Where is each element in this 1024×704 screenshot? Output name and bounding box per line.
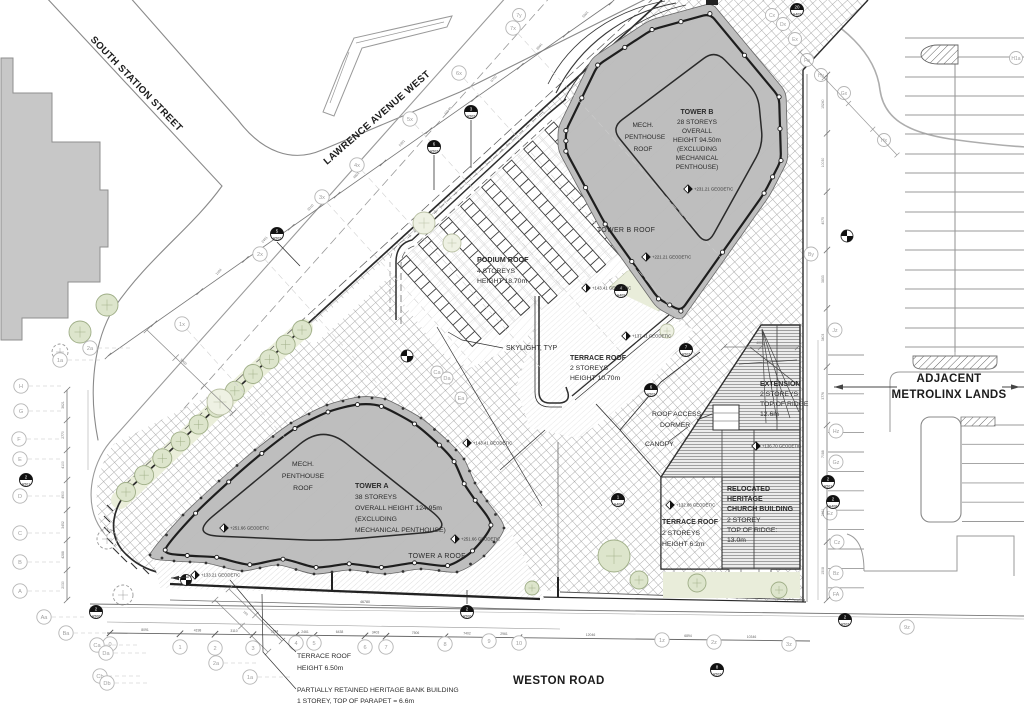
svg-text:TOWER B: TOWER B: [681, 109, 714, 116]
svg-text:Cx: Cx: [769, 13, 776, 19]
svg-text:4075: 4075: [821, 217, 825, 225]
svg-text:PENTHOUSE: PENTHOUSE: [625, 134, 666, 141]
svg-text:4005: 4005: [756, 341, 764, 345]
svg-text:7088: 7088: [821, 450, 825, 458]
svg-text:HEIGHT 6.50m: HEIGHT 6.50m: [297, 665, 344, 672]
svg-text:ROOF ACCESS: ROOF ACCESS: [652, 411, 702, 418]
svg-text:G: G: [19, 409, 23, 415]
svg-text:1: 1: [178, 645, 181, 651]
svg-text:A502: A502: [841, 623, 849, 627]
svg-text:1 STOREY, TOP OF PARAPET = 6.6: 1 STOREY, TOP OF PARAPET = 6.6m: [297, 698, 415, 704]
svg-text:5: 5: [312, 641, 315, 647]
svg-text:3403: 3403: [821, 334, 825, 342]
svg-text:MECHANICAL PENTHOUSE): MECHANICAL PENTHOUSE): [355, 527, 446, 534]
svg-text:Fa: Fa: [804, 58, 810, 64]
svg-text:F: F: [17, 437, 21, 443]
svg-text:2a: 2a: [87, 346, 94, 352]
svg-text:B: B: [18, 560, 22, 566]
svg-text:Cz: Cz: [834, 540, 841, 546]
svg-text:A502: A502: [713, 673, 721, 677]
svg-text:A500: A500: [92, 615, 100, 619]
svg-text:Db: Db: [103, 681, 110, 687]
svg-text:+143.41 GEODETIC: +143.41 GEODETIC: [592, 286, 631, 291]
svg-text:+136.70 GEODETIC: +136.70 GEODETIC: [762, 444, 801, 449]
svg-text:+221.21 GEODETIC: +221.21 GEODETIC: [652, 255, 691, 260]
svg-text:7y: 7y: [516, 13, 522, 19]
svg-text:A502: A502: [430, 150, 438, 154]
svg-text:5x: 5x: [407, 117, 413, 123]
svg-text:H1a: H1a: [1011, 56, 1020, 62]
svg-text:A501: A501: [824, 485, 832, 489]
svg-text:Da: Da: [102, 651, 110, 657]
svg-text:A500: A500: [463, 615, 471, 619]
svg-text:2a: 2a: [213, 661, 220, 667]
svg-text:Jz: Jz: [832, 328, 838, 334]
svg-text:7506: 7506: [412, 631, 420, 635]
svg-text:TOWER A: TOWER A: [355, 481, 389, 490]
svg-text:2030: 2030: [61, 581, 65, 589]
svg-text:By: By: [808, 252, 814, 258]
svg-text:4: 4: [294, 641, 297, 647]
svg-text:1a: 1a: [247, 675, 254, 681]
svg-text:OVERALL: OVERALL: [682, 128, 712, 135]
svg-text:MECH.: MECH.: [292, 461, 314, 468]
svg-text:PARTIALLY RETAINED HERITAGE BA: PARTIALLY RETAINED HERITAGE BANK BUILDIN…: [297, 687, 459, 694]
svg-text:DORMER: DORMER: [660, 422, 690, 429]
svg-text:A502: A502: [467, 115, 475, 119]
svg-text:3z: 3z: [786, 642, 792, 648]
svg-text:A501: A501: [22, 483, 30, 487]
svg-text:PODIUM ROOF: PODIUM ROOF: [477, 255, 529, 264]
svg-text:3x: 3x: [319, 195, 325, 201]
svg-text:(EXCLUDING: (EXCLUDING: [677, 146, 717, 153]
svg-text:2 STOREYS: 2 STOREYS: [760, 391, 798, 398]
svg-text:4100: 4100: [61, 461, 65, 469]
svg-text:6: 6: [363, 645, 366, 651]
svg-text:TOWER B ROOF: TOWER B ROOF: [597, 227, 655, 234]
svg-text:4198: 4198: [194, 629, 202, 633]
svg-text:3621: 3621: [61, 401, 65, 409]
svg-text:3110: 3110: [230, 629, 237, 633]
svg-text:Ea: Ea: [458, 396, 466, 402]
svg-text:HEIGHT 94.50m: HEIGHT 94.50m: [673, 137, 721, 144]
svg-text:METROLINX LANDS: METROLINX LANDS: [891, 389, 1006, 401]
svg-text:Ca: Ca: [433, 370, 441, 376]
svg-text:PENTHOUSE: PENTHOUSE: [282, 473, 325, 480]
svg-text:TOP OF RIDGE: TOP OF RIDGE: [760, 401, 809, 408]
svg-text:H: H: [19, 384, 23, 390]
svg-text:Ex: Ex: [792, 37, 798, 43]
svg-text:ADJACENT: ADJACENT: [916, 373, 981, 385]
svg-text:2x: 2x: [257, 252, 263, 258]
svg-text:Hz: Hz: [833, 429, 840, 435]
svg-text:13.0m: 13.0m: [727, 537, 746, 544]
svg-text:Dx: Dx: [780, 22, 787, 28]
svg-text:10346: 10346: [747, 635, 757, 639]
svg-text:2 STOREY: 2 STOREY: [727, 517, 761, 524]
svg-text:(EXCLUDING: (EXCLUDING: [355, 516, 397, 523]
svg-text:2z: 2z: [711, 640, 717, 646]
svg-text:EXTENSION: EXTENSION: [760, 381, 800, 388]
svg-text:28 STOREYS: 28 STOREYS: [677, 119, 718, 126]
svg-text:A: A: [18, 589, 22, 595]
svg-text:2961: 2961: [500, 632, 508, 636]
svg-text:A502: A502: [682, 353, 690, 357]
svg-text:8: 8: [443, 642, 446, 648]
svg-text:2 STOREYS: 2 STOREYS: [662, 530, 700, 537]
svg-text:A408: A408: [829, 505, 837, 509]
svg-text:12.6m: 12.6m: [760, 411, 779, 418]
svg-text:TOP OF RIDGE:: TOP OF RIDGE:: [727, 527, 777, 534]
svg-text:WESTON ROAD: WESTON ROAD: [513, 675, 605, 687]
svg-text:Bz: Bz: [833, 571, 839, 577]
svg-text:A502: A502: [273, 237, 281, 241]
svg-text:6438: 6438: [336, 630, 344, 634]
svg-text:MECHANICAL: MECHANICAL: [676, 155, 719, 162]
svg-text:1z: 1z: [659, 638, 665, 644]
svg-text:20: 20: [794, 5, 800, 10]
svg-text:+133.21 GEODETIC: +133.21 GEODETIC: [201, 573, 240, 578]
svg-text:FA: FA: [833, 592, 840, 598]
svg-text:4 STOREYS: 4 STOREYS: [477, 268, 515, 275]
svg-text:TERRACE ROOF: TERRACE ROOF: [570, 355, 627, 362]
svg-text:MECH.: MECH.: [633, 122, 654, 129]
svg-text:+132.88 GEODETIC: +132.88 GEODETIC: [676, 503, 715, 508]
svg-text:7: 7: [384, 645, 387, 651]
svg-text:8091: 8091: [141, 628, 149, 632]
svg-text:2461: 2461: [821, 509, 825, 517]
svg-text:HERITAGE: HERITAGE: [727, 496, 763, 503]
svg-text:7x: 7x: [510, 26, 516, 32]
svg-text:2461: 2461: [301, 630, 309, 634]
svg-text:+251.66 GEODETIC: +251.66 GEODETIC: [461, 537, 500, 542]
svg-text:E: E: [18, 457, 22, 463]
svg-text:1x: 1x: [179, 322, 185, 328]
svg-text:Gz: Gz: [833, 460, 840, 466]
svg-text:+231.21 GEODETIC: +231.21 GEODETIC: [694, 187, 733, 192]
svg-text:3833: 3833: [821, 275, 825, 283]
svg-text:D: D: [18, 494, 22, 500]
svg-text:9z: 9z: [904, 625, 910, 631]
svg-text:10: 10: [516, 641, 522, 647]
svg-text:Ba: Ba: [63, 631, 71, 637]
svg-text:ROOF: ROOF: [293, 485, 313, 492]
svg-text:Aa: Aa: [41, 615, 49, 621]
svg-text:PENTHOUSE): PENTHOUSE): [676, 164, 719, 171]
svg-text:A409: A409: [793, 13, 801, 17]
svg-text:3403: 3403: [372, 631, 380, 635]
svg-text:Da: Da: [443, 376, 451, 382]
svg-text:10030: 10030: [821, 158, 825, 168]
svg-text:3776: 3776: [821, 392, 825, 400]
svg-text:A502: A502: [647, 393, 655, 397]
svg-text:A408: A408: [614, 503, 622, 507]
svg-text:TERRACE ROOF: TERRACE ROOF: [297, 653, 351, 660]
svg-text:TOWER A ROOF: TOWER A ROOF: [408, 553, 466, 560]
svg-text:6x: 6x: [456, 71, 462, 77]
svg-text:ROOF: ROOF: [634, 146, 653, 153]
svg-text:2: 2: [213, 646, 216, 652]
svg-text:2 STOREYS: 2 STOREYS: [570, 365, 608, 372]
svg-text:A409: A409: [617, 294, 625, 298]
svg-text:+251.66 GEODETIC: +251.66 GEODETIC: [230, 526, 269, 531]
svg-text:4x: 4x: [354, 163, 360, 169]
svg-text:3452: 3452: [61, 521, 65, 529]
svg-text:7402: 7402: [463, 632, 471, 636]
svg-text:12046: 12046: [586, 633, 596, 637]
svg-text:CHURCH BUILDING: CHURCH BUILDING: [727, 506, 794, 513]
svg-text:1508: 1508: [821, 567, 825, 575]
svg-text:RELOCATED: RELOCATED: [727, 486, 770, 493]
svg-text:1a: 1a: [57, 358, 64, 364]
svg-text:Ez: Ez: [827, 511, 833, 517]
svg-text:C: C: [18, 531, 22, 537]
svg-text:9: 9: [487, 639, 490, 645]
svg-text:4900: 4900: [61, 491, 65, 499]
svg-text:OVERALL HEIGHT 124.95m: OVERALL HEIGHT 124.95m: [355, 505, 442, 512]
svg-text:HEIGHT 6.2m: HEIGHT 6.2m: [662, 541, 705, 548]
svg-text:3: 3: [251, 646, 254, 652]
svg-text:CANOPY: CANOPY: [645, 441, 674, 448]
svg-text:38 STOREYS: 38 STOREYS: [355, 494, 397, 501]
svg-text:15240: 15240: [821, 99, 825, 109]
svg-text:46780: 46780: [360, 600, 370, 604]
svg-text:SKYLIGHT, TYP: SKYLIGHT, TYP: [506, 345, 558, 352]
svg-text:HEIGHT 18.70m: HEIGHT 18.70m: [477, 278, 527, 285]
svg-text:+137.41 GEODETIC: +137.41 GEODETIC: [632, 334, 671, 339]
svg-text:4288: 4288: [61, 551, 65, 559]
svg-text:TERRACE ROOF: TERRACE ROOF: [662, 519, 719, 526]
svg-text:HEIGHT 10.70m: HEIGHT 10.70m: [570, 375, 620, 382]
svg-text:6894: 6894: [684, 634, 692, 638]
svg-text:2770: 2770: [61, 431, 65, 439]
